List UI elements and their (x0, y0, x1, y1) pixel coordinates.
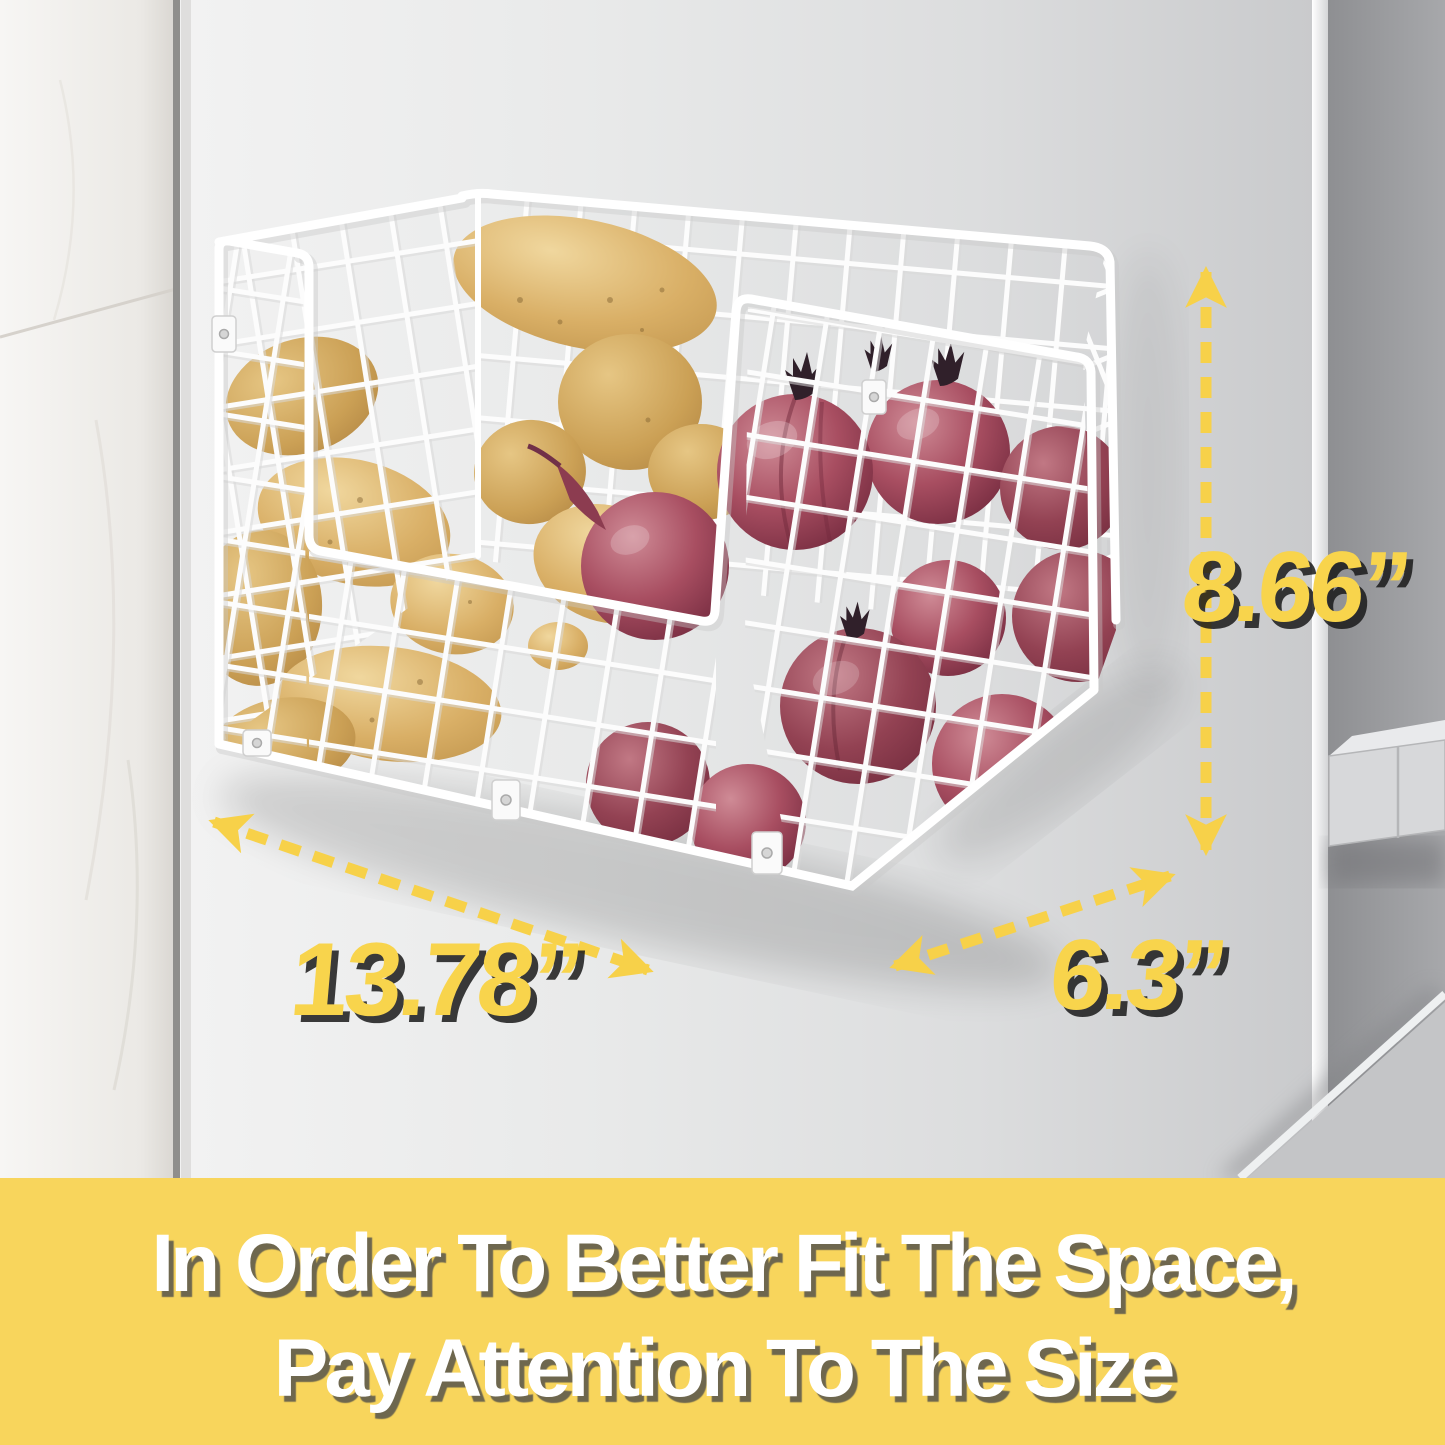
depth-dimension-label: 6.3” (943, 925, 1332, 1025)
product-image: 8.66” 13.78” 6.3” In Order To Better Fit… (0, 0, 1445, 1445)
size-warning-banner: In Order To Better Fit The Space, Pay At… (0, 1178, 1445, 1445)
width-dimension-label: 13.78” (180, 928, 689, 1032)
banner-line-2: Pay Attention To The Size (0, 1317, 1445, 1422)
door-handle (1329, 720, 1445, 884)
banner-line-1: In Order To Better Fit The Space, (0, 1212, 1445, 1317)
height-dimension-label: 8.66” (1136, 537, 1445, 637)
size-warning-text: In Order To Better Fit The Space, Pay At… (0, 1178, 1445, 1422)
